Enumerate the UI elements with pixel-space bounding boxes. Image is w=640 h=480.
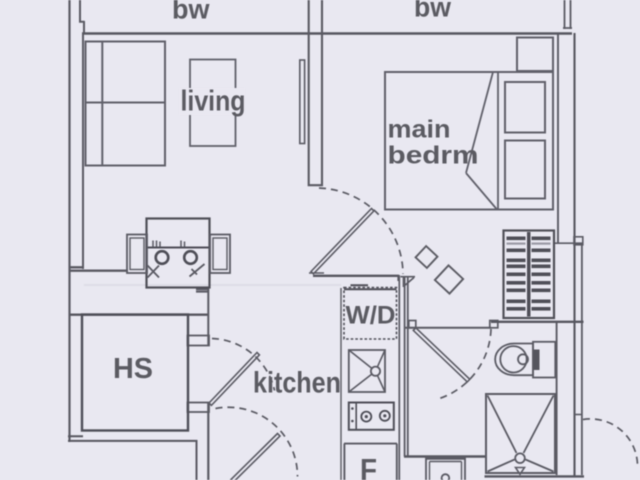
svg-text:W/D: W/D [346, 302, 396, 330]
svg-text:bw: bw [414, 0, 451, 23]
svg-text:bedrm: bedrm [388, 142, 479, 170]
svg-text:bw: bw [172, 0, 210, 25]
svg-text:kitchen: kitchen [253, 367, 341, 400]
svg-text:living: living [181, 86, 246, 118]
svg-text:HS: HS [113, 353, 153, 385]
svg-text:F: F [360, 452, 377, 480]
svg-text:main: main [388, 116, 451, 144]
